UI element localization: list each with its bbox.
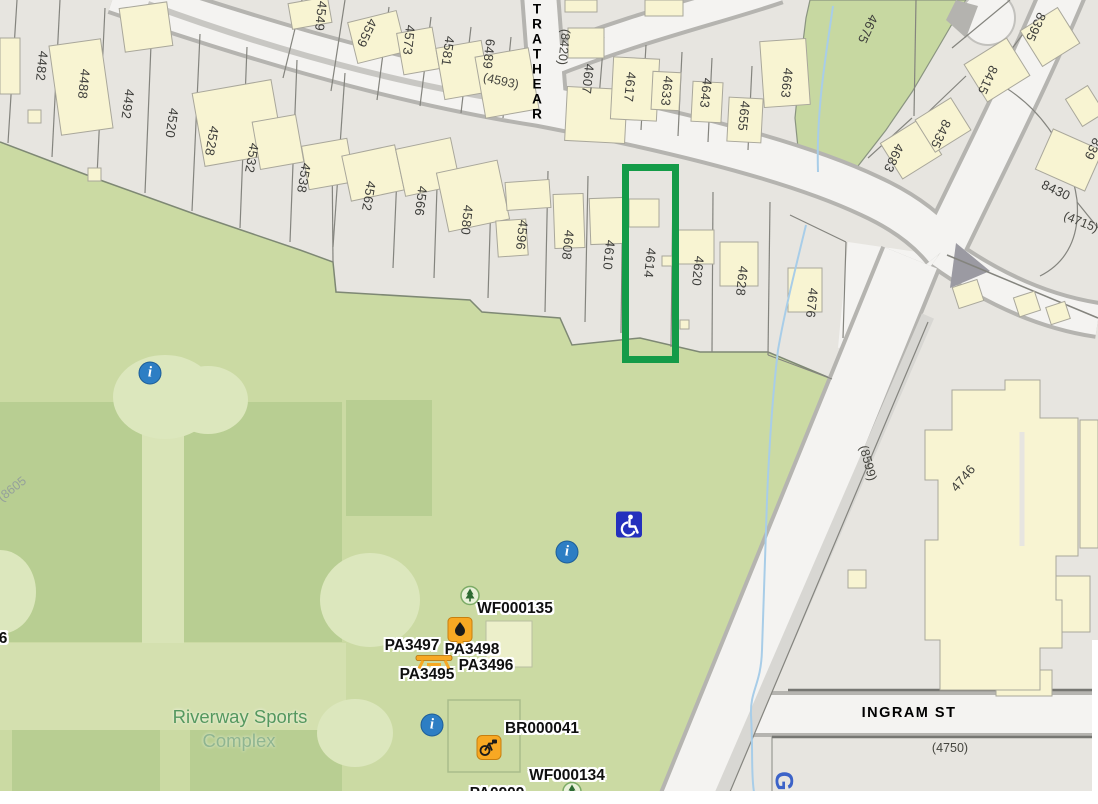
park-name-label: Complex: [203, 730, 276, 752]
street-name-label: STRATHEAR: [530, 0, 545, 122]
parcel-number-label: 4580: [458, 204, 476, 236]
bike-rack-icon[interactable]: [476, 735, 502, 766]
parcel-number-label: 4528: [202, 125, 222, 157]
asset-id-label: WF000135: [477, 600, 553, 618]
parcel-number-label: 4676: [803, 287, 821, 319]
parcel-number-label: 4675: [855, 12, 881, 46]
parcel-number-label: 4573: [400, 24, 418, 56]
parcel-number-label: 6489: [480, 38, 498, 70]
viewport-edge-right: [1092, 640, 1098, 791]
parcel-number-label: 4559: [354, 16, 380, 50]
asset-id-label: PA3496: [459, 657, 514, 675]
picnic-table-icon[interactable]: [415, 654, 453, 675]
parcel-number-label: 4746: [948, 462, 979, 495]
map-viewport[interactable]: 4482448844924520452845324538454945594573…: [0, 0, 1098, 804]
map-labels-layer: 4482448844924520452845324538454945594573…: [0, 0, 1098, 804]
parcel-number-label: 4655: [735, 100, 753, 132]
parcel-number-label: 4538: [294, 162, 314, 194]
parcel-number-label: 4520: [162, 107, 181, 139]
parcel-number-label: 4562: [359, 180, 379, 212]
asset-id-label: 6: [0, 630, 7, 648]
parcel-number-label: 4482: [33, 50, 51, 82]
road-reference-label: (8599): [857, 444, 880, 483]
parcel-number-label: 4614: [641, 247, 659, 279]
asset-id-label: PA3497: [385, 637, 440, 655]
fountain-icon[interactable]: [447, 617, 473, 652]
parcel-number-label: 4488: [75, 68, 93, 100]
parcel-number-label: 4628: [733, 265, 751, 297]
parcel-number-label: 4610: [600, 239, 618, 271]
parcel-number-label: 4596: [513, 219, 531, 251]
parcel-number-label: 4620: [689, 255, 707, 287]
info-icon[interactable]: i: [556, 541, 579, 564]
park-name-label: Riverway Sports: [173, 706, 308, 728]
parcel-number-label: 8415: [975, 63, 1001, 97]
parcel-number-label: 4607: [579, 63, 597, 95]
info-icon[interactable]: i: [421, 714, 444, 737]
parcel-number-label: 4581: [438, 35, 457, 67]
parcel-number-label: 4617: [621, 71, 639, 103]
parcel-number-label: 4492: [118, 88, 137, 120]
parcel-number-label: 4663: [778, 67, 796, 99]
parcel-number-label: 4549: [312, 0, 330, 32]
parcel-number-label: 4683: [881, 141, 907, 175]
wheelchair-icon[interactable]: [616, 512, 642, 543]
road-reference-label: (4715): [1062, 209, 1098, 236]
tree-icon[interactable]: [460, 586, 480, 611]
parcel-number-label: 8430: [1039, 177, 1073, 203]
parcel-number-label: 4566: [412, 185, 431, 217]
parcel-number-label: 8435: [928, 117, 954, 151]
asset-id-label: BR000041: [505, 720, 579, 738]
parcel-number-label: 839: [1081, 136, 1098, 163]
parcel-number-label: 4608: [559, 229, 577, 261]
road-reference-label: (8420): [555, 28, 573, 65]
parcel-number-label: 4633: [658, 75, 676, 107]
parcel-number-label: 4643: [697, 77, 715, 109]
street-name-label: INGRAM ST: [862, 705, 957, 721]
map-annotation-label: G: [769, 771, 798, 790]
parcel-number-label: 8395: [1023, 10, 1049, 44]
viewport-edge-bottom: [0, 791, 1098, 804]
road-reference-label: (8605: [0, 474, 29, 505]
parcel-number-label: 4532: [242, 142, 262, 174]
info-icon[interactable]: i: [139, 362, 162, 385]
road-reference-label: (4593): [482, 70, 520, 91]
road-reference-label: (4750): [932, 741, 968, 755]
